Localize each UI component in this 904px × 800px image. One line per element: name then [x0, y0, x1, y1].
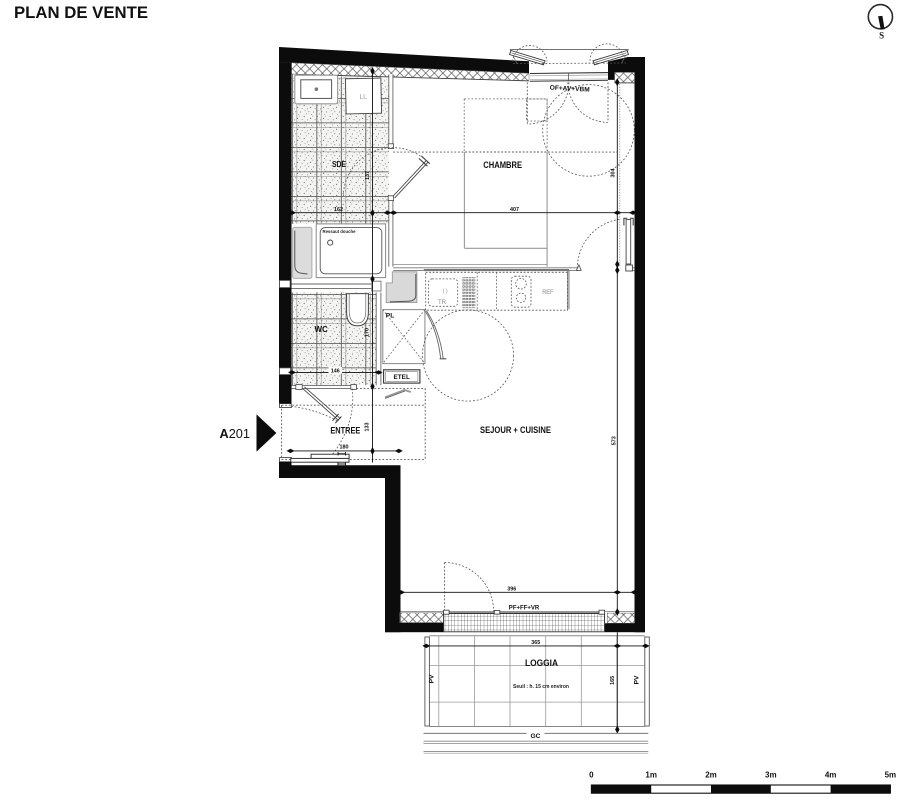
svg-text:PLAN DE VENTE: PLAN DE VENTE — [14, 3, 148, 22]
svg-text:3m: 3m — [765, 771, 777, 780]
svg-text:ENTREE: ENTREE — [330, 425, 360, 435]
svg-text:5m: 5m — [885, 771, 897, 780]
svg-text:180: 180 — [340, 445, 349, 451]
svg-text:REF: REF — [542, 289, 553, 296]
svg-text:146: 146 — [331, 369, 340, 375]
svg-text:WC: WC — [315, 324, 328, 334]
svg-text:137: 137 — [365, 171, 371, 180]
svg-text:LOGGIA: LOGGIA — [525, 657, 558, 668]
svg-text:( ): ( ) — [443, 289, 448, 295]
svg-text:PV: PV — [428, 674, 435, 683]
svg-text:GC: GC — [530, 733, 540, 740]
svg-text:133: 133 — [364, 423, 370, 432]
svg-text:Ressaut douche: Ressaut douche — [323, 229, 357, 234]
svg-text:PF+FF+VR: PF+FF+VR — [509, 605, 540, 612]
svg-text:PL: PL — [386, 313, 394, 320]
svg-text:162: 162 — [334, 207, 343, 213]
svg-text:573: 573 — [611, 436, 617, 445]
svg-text:ETEL: ETEL — [394, 374, 410, 381]
svg-text:SEJOUR + CUISINE: SEJOUR + CUISINE — [480, 425, 551, 435]
svg-text:0: 0 — [589, 771, 594, 780]
svg-text:170: 170 — [365, 328, 371, 337]
svg-text:365: 365 — [531, 640, 540, 646]
svg-text:S: S — [879, 31, 884, 41]
svg-text:LL: LL — [359, 94, 367, 101]
svg-text:CHAMBRE: CHAMBRE — [483, 160, 522, 170]
svg-text:PV: PV — [634, 675, 641, 684]
svg-text:2m: 2m — [705, 771, 717, 780]
svg-text:1m: 1m — [645, 771, 657, 780]
svg-text:304: 304 — [611, 169, 617, 178]
svg-text:Seuil : h. 15 cm environ: Seuil : h. 15 cm environ — [513, 684, 570, 690]
svg-text:A201: A201 — [220, 427, 251, 441]
svg-text:407: 407 — [510, 207, 519, 213]
svg-text:TR: TR — [438, 300, 447, 306]
svg-text:4m: 4m — [825, 771, 837, 780]
svg-text:165: 165 — [610, 676, 616, 685]
svg-text:396: 396 — [507, 587, 516, 593]
svg-text:SDE: SDE — [332, 159, 346, 169]
